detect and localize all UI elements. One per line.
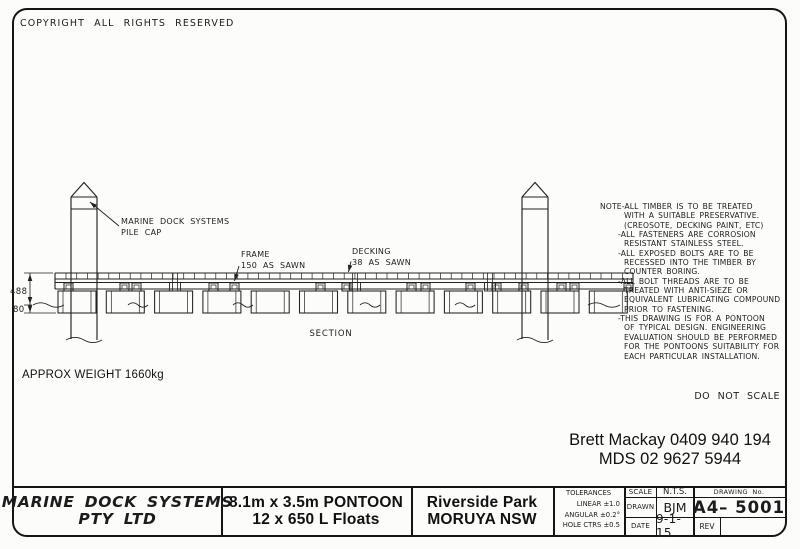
bolt-block-inner [559, 285, 564, 289]
drawing-no-value: A4– 5001 [694, 497, 784, 517]
note-line: OF TYPICAL DESIGN. ENGINEERING [600, 323, 790, 332]
bolt-block-inner [122, 285, 127, 289]
bolt-block [209, 283, 218, 291]
decking-label: DECKING 38 AS SAWN [352, 247, 411, 268]
height-dimension-label: 488 [10, 287, 27, 297]
bolt-block [570, 283, 579, 291]
float-shape [58, 291, 96, 313]
note-line: EQUIVALENT LUBRICATING COMPOUND [600, 295, 790, 304]
note-line: EVALUATION SHOULD BE PERFORMED [600, 333, 790, 342]
water-line [360, 303, 380, 307]
float-shape [541, 291, 579, 313]
bolt-block-inner [468, 285, 473, 289]
do-not-scale-label: DO NOT SCALE [694, 391, 780, 402]
note-line: -ALL FASTENERS ARE CORROSION [600, 230, 790, 239]
water-line [455, 303, 475, 307]
bolt-block-inner [494, 285, 499, 289]
product-title: 8.1m x 3.5m PONTOON [229, 494, 403, 512]
drawn-label: DRAWN [625, 497, 656, 517]
company-name: MARINE DOCK SYSTEMS [2, 494, 234, 512]
contact-mds-phone: MDS 02 9627 5944 [550, 450, 790, 469]
bolt-block-inner [318, 285, 323, 289]
frame-leader-arrowhead [234, 274, 238, 281]
bolt-block [557, 283, 566, 291]
bolt-block-inner [572, 285, 577, 289]
bolt-block [466, 283, 475, 291]
pile-cap-point [71, 183, 97, 198]
project-location: MORUYA NSW [427, 511, 536, 529]
pile-cap-label-line1: MARINE DOCK SYSTEMS [121, 217, 229, 228]
draft-dimension-label: 80 [13, 305, 25, 315]
date-value: 9-1-15 [656, 517, 694, 535]
dim-arrow [28, 297, 33, 304]
bolt-block-inner [344, 285, 349, 289]
rev-label: REV [694, 517, 720, 535]
note-line: NOTE-ALL TIMBER IS TO BE TREATED [600, 202, 790, 211]
note-line: RECESSED INTO THE TIMBER BY [600, 258, 790, 267]
dim-arrow [28, 274, 33, 281]
float-shape [251, 291, 289, 313]
bolt-block [407, 283, 416, 291]
note-line: TREATED WITH ANTI-SIEZE OR [600, 286, 790, 295]
note-line: RESISTANT STAINLESS STEEL. [600, 239, 790, 248]
project-cell: Riverside Park MORUYA NSW [412, 487, 552, 535]
decking-label-line1: DECKING [352, 247, 411, 258]
scale-label: SCALE [625, 487, 656, 497]
note-line: EACH PARTICULAR INSTALLATION. [600, 352, 790, 361]
tolerance-linear: LINEAR ±1.0 [554, 499, 623, 510]
bolt-block [316, 283, 325, 291]
bolt-block-inner [409, 285, 414, 289]
date-label: DATE [625, 517, 656, 535]
bolt-block [230, 283, 239, 291]
float-shape [348, 291, 386, 313]
frame-label-line1: FRAME [241, 250, 305, 261]
bolt-block-inner [134, 285, 139, 289]
tolerance-hole-ctrs: HOLE CTRS ±0.5 [554, 520, 623, 531]
bolt-block [64, 283, 73, 291]
float-shape [155, 291, 193, 313]
title-block-divider [720, 517, 721, 535]
note-line: COUNTER BORING. [600, 267, 790, 276]
section-label: SECTION [296, 329, 366, 339]
float-shape [493, 291, 531, 313]
tolerance-angular: ANGULAR ±0.2° [554, 510, 623, 521]
bolt-block [421, 283, 430, 291]
float-shape [444, 291, 482, 313]
note-line: WITH A SUITABLE PRESERVATIVE. [600, 211, 790, 220]
bolt-block [519, 283, 528, 291]
project-name: Riverside Park [427, 494, 538, 512]
float-shape [396, 291, 434, 313]
notes-block: NOTE-ALL TIMBER IS TO BE TREATEDWITH A S… [600, 202, 790, 361]
frame-joint-block [170, 283, 181, 292]
product-subtitle: 12 x 650 L Floats [252, 511, 379, 529]
note-line: -ALL BOLT THREADS ARE TO BE [600, 277, 790, 286]
contact-name-phone: Brett Mackay 0409 940 194 [550, 431, 790, 450]
company-cell: MARINE DOCK SYSTEMS PTY LTD [15, 487, 220, 535]
company-suffix: PTY LTD [78, 511, 156, 529]
scale-value: N.T.S. [656, 487, 694, 497]
contact-block: Brett Mackay 0409 940 194 MDS 02 9627 59… [550, 431, 790, 469]
float-shape [203, 291, 241, 313]
tolerances-header: TOLERANCES [554, 488, 623, 499]
bolt-block-inner [232, 285, 237, 289]
drawing-no-label: DRAWING No. [694, 487, 784, 497]
pile-cap-point [522, 183, 548, 198]
frame-label-line2: 150 AS SAWN [241, 261, 305, 272]
bolt-block [120, 283, 129, 291]
float-shape [300, 291, 338, 313]
note-line: FOR THE PONTOONS SUITABILITY FOR [600, 342, 790, 351]
approx-weight-label: APPROX WEIGHT 1660kg [22, 369, 164, 381]
bolt-block-inner [423, 285, 428, 289]
note-line: -THIS DRAWING IS FOR A PONTOON [600, 314, 790, 323]
bolt-block [132, 283, 141, 291]
water-line [128, 303, 148, 307]
bolt-block [492, 283, 501, 291]
tolerances-cell: TOLERANCES LINEAR ±1.0 ANGULAR ±0.2° HOL… [554, 488, 623, 535]
drawing-sheet: COPYRIGHT ALL RIGHTS RESERVED MARINE DOC… [0, 0, 800, 549]
pile-cap-label-line2: PILE CAP [121, 228, 229, 239]
bolt-block-inner [211, 285, 216, 289]
note-line: (CREOSOTE, DECKING PAINT, ETC) [600, 221, 790, 230]
water-line [33, 303, 64, 307]
float-shape [106, 291, 144, 313]
note-line: -ALL EXPOSED BOLTS ARE TO BE [600, 249, 790, 258]
product-cell: 8.1m x 3.5m PONTOON 12 x 650 L Floats [222, 487, 410, 535]
bolt-block-inner [66, 285, 71, 289]
dim-arrow [28, 305, 33, 312]
pile-cap-label: MARINE DOCK SYSTEMS PILE CAP [121, 217, 229, 238]
decking-label-line2: 38 AS SAWN [352, 258, 411, 269]
note-line: PRIOR TO FASTENING. [600, 305, 790, 314]
frame-label: FRAME 150 AS SAWN [241, 250, 305, 271]
